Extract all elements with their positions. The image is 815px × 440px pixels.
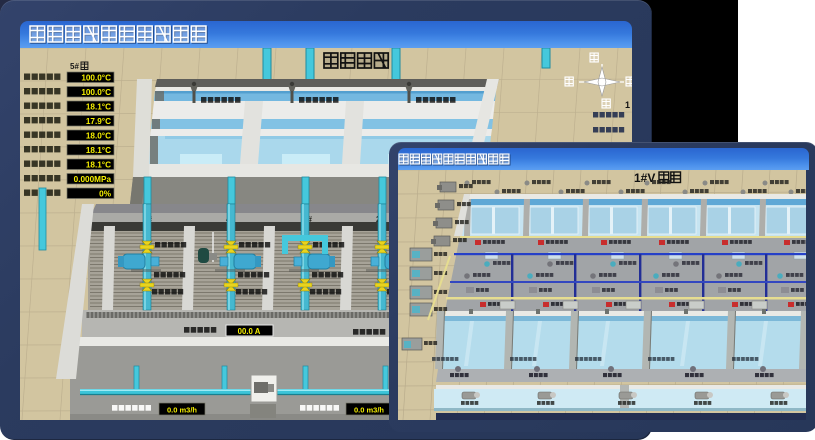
svg-text:100.0°C: 100.0°C [81, 88, 111, 97]
svg-text:18.1°C: 18.1°C [86, 161, 111, 170]
svg-text:1: 1 [625, 100, 630, 110]
svg-text:0.0 m3/h: 0.0 m3/h [167, 406, 197, 415]
svg-text:18.1°C: 18.1°C [86, 103, 111, 112]
svg-text:18.0°C: 18.0°C [86, 132, 111, 141]
svg-text:18.1°C: 18.1°C [86, 146, 111, 155]
svg-text:17.9°C: 17.9°C [86, 117, 111, 126]
svg-text:5#: 5# [70, 62, 79, 71]
svg-text:0.0 m3/h: 0.0 m3/h [354, 406, 384, 415]
svg-text:100.0°C: 100.0°C [81, 74, 111, 83]
svg-text:0%: 0% [99, 190, 112, 199]
svg-text:00.0 A: 00.0 A [238, 327, 261, 336]
svg-text:0.000MPa: 0.000MPa [74, 175, 112, 184]
